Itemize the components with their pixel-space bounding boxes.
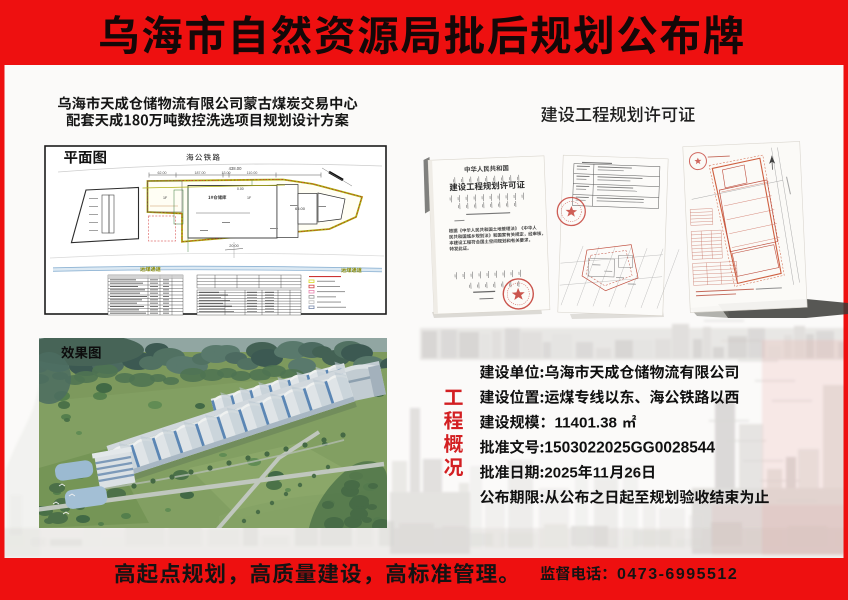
svg-text:187.00: 187.00 <box>195 171 206 175</box>
svg-text:110.00: 110.00 <box>247 171 258 175</box>
svg-text:0473-6995512: 0473-6995512 <box>617 566 738 583</box>
svg-text:65.00: 65.00 <box>295 206 306 211</box>
svg-text:438.00: 438.00 <box>229 166 242 171</box>
svg-text:0.00: 0.00 <box>237 187 244 191</box>
svg-text:62.00: 62.00 <box>158 171 167 175</box>
svg-text:2025: 2025 <box>544 465 577 482</box>
svg-text:26: 26 <box>624 465 641 482</box>
svg-text:13.00: 13.00 <box>222 171 231 175</box>
svg-text:11401.38: 11401.38 <box>555 415 618 432</box>
svg-text:1503022025GG0028544: 1503022025GG0028544 <box>544 440 715 457</box>
svg-text:11: 11 <box>593 465 609 482</box>
